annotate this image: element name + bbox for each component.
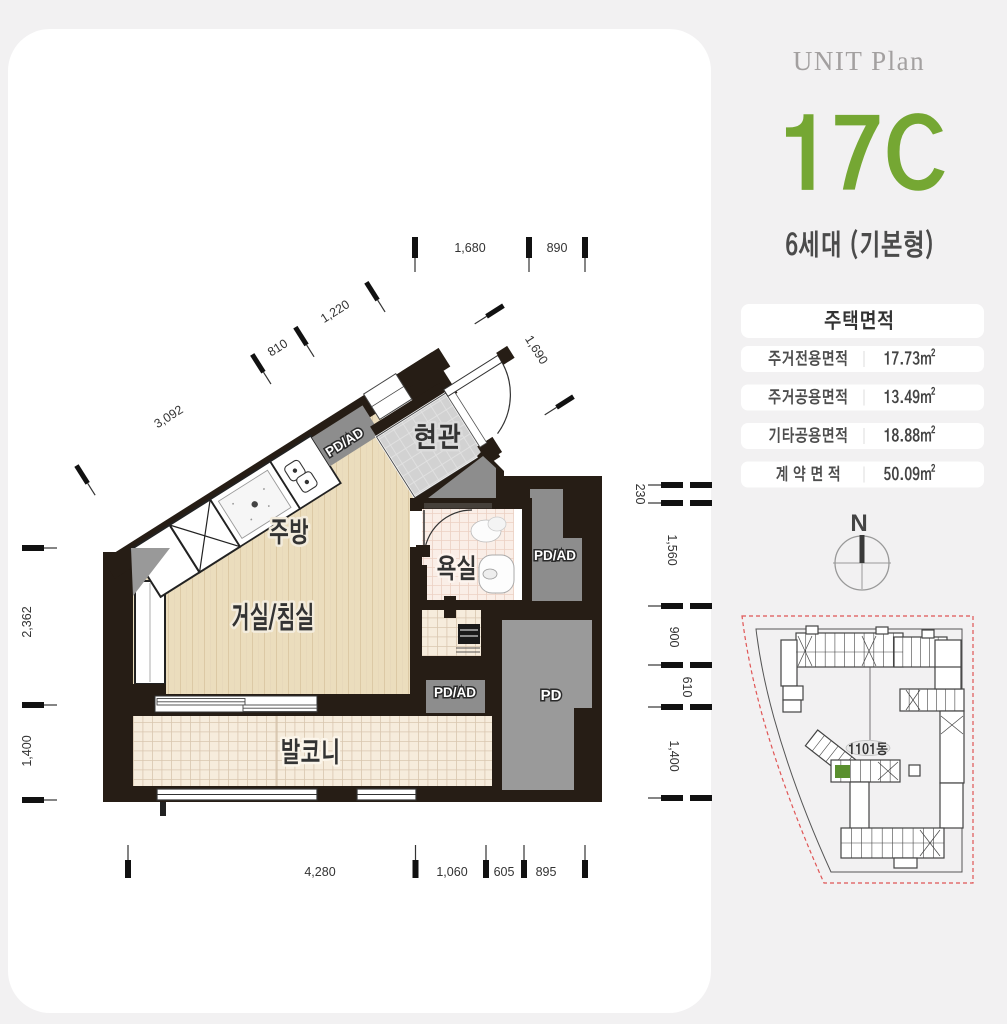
- svg-text:1,060: 1,060: [436, 865, 467, 879]
- svg-text:610: 610: [680, 677, 694, 698]
- svg-text:1,560: 1,560: [665, 534, 679, 565]
- svg-text:PD/AD: PD/AD: [534, 548, 576, 563]
- svg-text:N: N: [850, 510, 867, 537]
- svg-text:4,280: 4,280: [304, 865, 335, 879]
- svg-text:605: 605: [494, 865, 515, 879]
- svg-text:230: 230: [633, 484, 647, 505]
- svg-text:2,362: 2,362: [20, 606, 34, 637]
- svg-text:900: 900: [667, 627, 681, 648]
- svg-text:890: 890: [547, 241, 568, 255]
- svg-text:1,400: 1,400: [20, 735, 34, 766]
- svg-text:895: 895: [536, 865, 557, 879]
- svg-text:UNIT Plan: UNIT Plan: [793, 46, 925, 76]
- svg-text:1,680: 1,680: [454, 241, 485, 255]
- svg-text:1,400: 1,400: [667, 740, 681, 771]
- svg-text:PD: PD: [541, 687, 562, 704]
- svg-text:PD/AD: PD/AD: [434, 685, 476, 700]
